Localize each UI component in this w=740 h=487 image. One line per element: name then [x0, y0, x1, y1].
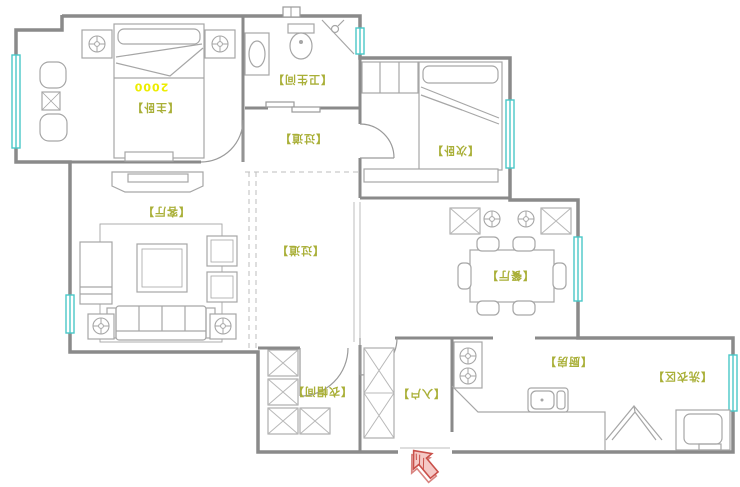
dining-chair-icon [513, 301, 535, 315]
dining-chair-icon [513, 237, 535, 251]
pipe-shaft [283, 7, 300, 17]
living-room-furniture [80, 172, 237, 342]
dining-chair-icon [458, 263, 471, 289]
floor-plan: 2000 【主卧】 【卫生间】 【过道】 【次卧】 【客厅】 【过道】 【餐厅】… [0, 0, 740, 487]
sofa-icon [107, 306, 215, 340]
second-bedroom-door-icon [360, 124, 394, 158]
room-label-entry: 【入户】 [397, 386, 445, 402]
room-label-kitchen: 【厨房】 [544, 354, 592, 370]
laundry-fixtures [606, 406, 730, 450]
desk-icon [364, 169, 498, 182]
window-icon [574, 237, 582, 301]
sink-icon [528, 388, 568, 412]
room-label-bathroom: 【卫生间】 [272, 72, 332, 88]
wardrobe-icon [362, 62, 418, 93]
window-icon [356, 28, 364, 54]
second-bedroom-furniture [362, 62, 502, 182]
dresser-icon [125, 152, 173, 161]
sideboard-icon [450, 208, 571, 234]
folding-door-icon [606, 406, 662, 440]
window-icon [12, 55, 20, 148]
tv-console-icon [112, 172, 203, 192]
entry-cabinet [364, 348, 394, 438]
washbasin-icon [245, 33, 269, 75]
coffee-table-icon [137, 244, 187, 292]
dimension-label: 2000 [134, 81, 169, 94]
room-label-cloakroom: 【衣帽间】 [292, 384, 352, 400]
room-label-hallway-upper: 【过道】 [279, 131, 327, 147]
armchair-icon [207, 272, 237, 302]
room-label-living-room: 【客厅】 [142, 204, 190, 220]
armchair-icon [207, 236, 237, 266]
dining-chair-icon [553, 263, 566, 289]
bathroom-sliding-door-icon [266, 102, 294, 107]
room-label-laundry: 【洗衣区】 [652, 369, 712, 385]
cabinet-icon [80, 242, 112, 304]
leisure-chair-icon [40, 114, 67, 141]
room-label-dining-room: 【餐厅】 [486, 268, 534, 284]
room-label-master-bedroom: 【主卧】 [131, 100, 179, 116]
room-label-second-bedroom: 【次卧】 [431, 143, 479, 159]
toilet-icon [288, 24, 314, 59]
leisure-chair-icon [40, 62, 66, 88]
window-icon [729, 355, 737, 411]
dining-chair-icon [477, 237, 499, 251]
washing-machine-icon [676, 410, 730, 450]
shower-icon [322, 20, 354, 54]
window-icon [506, 100, 514, 168]
room-label-hallway: 【过道】 [276, 243, 324, 259]
open-boundaries [245, 172, 450, 448]
bathroom-fixtures [245, 20, 354, 75]
dining-chair-icon [477, 301, 499, 315]
master-bedroom-door-icon [201, 120, 243, 162]
side-table-icon [42, 92, 60, 110]
window-icon [66, 295, 74, 333]
entrance-arrow-icon [401, 443, 444, 487]
dining-room-furniture [450, 208, 571, 315]
floor-plan-drawing [0, 0, 740, 487]
